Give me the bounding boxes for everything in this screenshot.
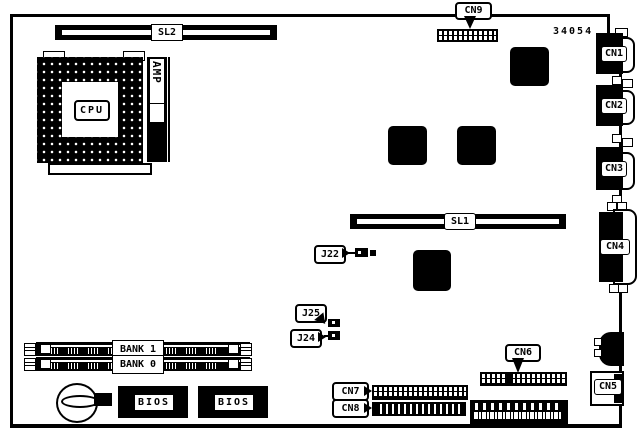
terminal-pips-row [473,403,561,410]
amp-window [150,104,164,122]
bank1-end-clip-left [24,343,36,356]
amp-edge-line [168,57,170,162]
connector-cn9 [437,29,498,42]
cn9-pointer-icon [464,16,476,29]
cn7-pins-row1 [374,387,466,391]
connector-cn8 [372,402,466,416]
cn7-pins-row2 [374,392,466,396]
bank0-end-clip-left [24,358,36,371]
slot-sl2-label: SL2 [151,24,183,41]
slot-sl1-label: SL1 [444,213,476,230]
cn2-label: CN2 [601,98,627,114]
cpu-socket-bar [48,163,152,175]
amp-label: AMP [150,61,163,84]
cn6-key-gap [506,373,513,384]
din-connector [599,332,624,366]
cpu-label: CPU [74,100,110,121]
battery-clip-block [94,393,112,406]
jumper-j22 [355,248,368,257]
bank1-pins-right [166,348,226,354]
cn6-pins-row2 [482,379,565,383]
cn7-pointer-icon [364,386,372,396]
edge-tab [618,284,628,293]
bank0-pins-left [48,363,112,369]
board-edge-right-upper [607,14,610,33]
bank0-pins-right [166,363,226,369]
connector-cn6 [480,372,567,386]
bank1-pins-left [48,348,112,354]
bank1-end-clip-right [240,343,252,356]
cn6-pointer-icon [512,358,524,373]
ic-chip [388,126,427,165]
board-edge-bottom [10,424,622,428]
bank1-latch-left [40,344,51,354]
j24-pointer-icon [318,332,326,342]
edge-tab [612,134,622,143]
edge-tab [612,76,622,85]
bank0-label: BANK 0 [112,355,164,374]
ic-chip [457,126,496,165]
din-tab [594,338,602,346]
board-edge-left [10,14,13,428]
bios1-label: BIOS [134,394,174,411]
cn6-pins-row1 [482,374,565,378]
bios2-label: BIOS [214,394,254,411]
jumper-j25 [328,319,340,327]
amp-regulator: AMP [147,57,167,162]
jumper-j22-pin [370,250,376,256]
bank0-end-clip-right [240,358,252,371]
cn9-pins-row2 [439,36,496,40]
edge-tab [622,79,633,88]
j22-lead [348,252,355,254]
part-number: 34054 [553,26,593,37]
jumper-j24 [328,331,340,340]
ic-chip [413,250,451,291]
cn1-label: CN1 [601,46,627,62]
edge-tab [622,138,633,147]
ic-chip [510,47,549,86]
bank0-latch-left [40,359,51,369]
motherboard-diagram: SL2 CPU AMP 34054 CN9 SL1 CN1 CN2 [0,0,639,432]
amp-label-box: AMP [150,59,164,103]
bank1-latch-right [228,344,239,354]
jumper-pip [358,251,361,254]
cn5-label: CN5 [594,379,622,395]
din-tab [594,349,602,357]
jumper-pip [332,321,335,324]
cn8-stripes [376,404,462,414]
bank0-latch-right [228,359,239,369]
terminal-block [470,400,568,424]
cn9-pins-row1 [439,31,496,35]
cn4-label: CN4 [600,239,630,255]
board-edge-top [10,14,610,17]
cn3-label: CN3 [601,161,627,177]
jumper-pip [332,334,335,337]
cn8-pointer-icon [364,403,372,413]
terminal-squares-row [473,411,561,419]
connector-cn7 [372,385,468,400]
